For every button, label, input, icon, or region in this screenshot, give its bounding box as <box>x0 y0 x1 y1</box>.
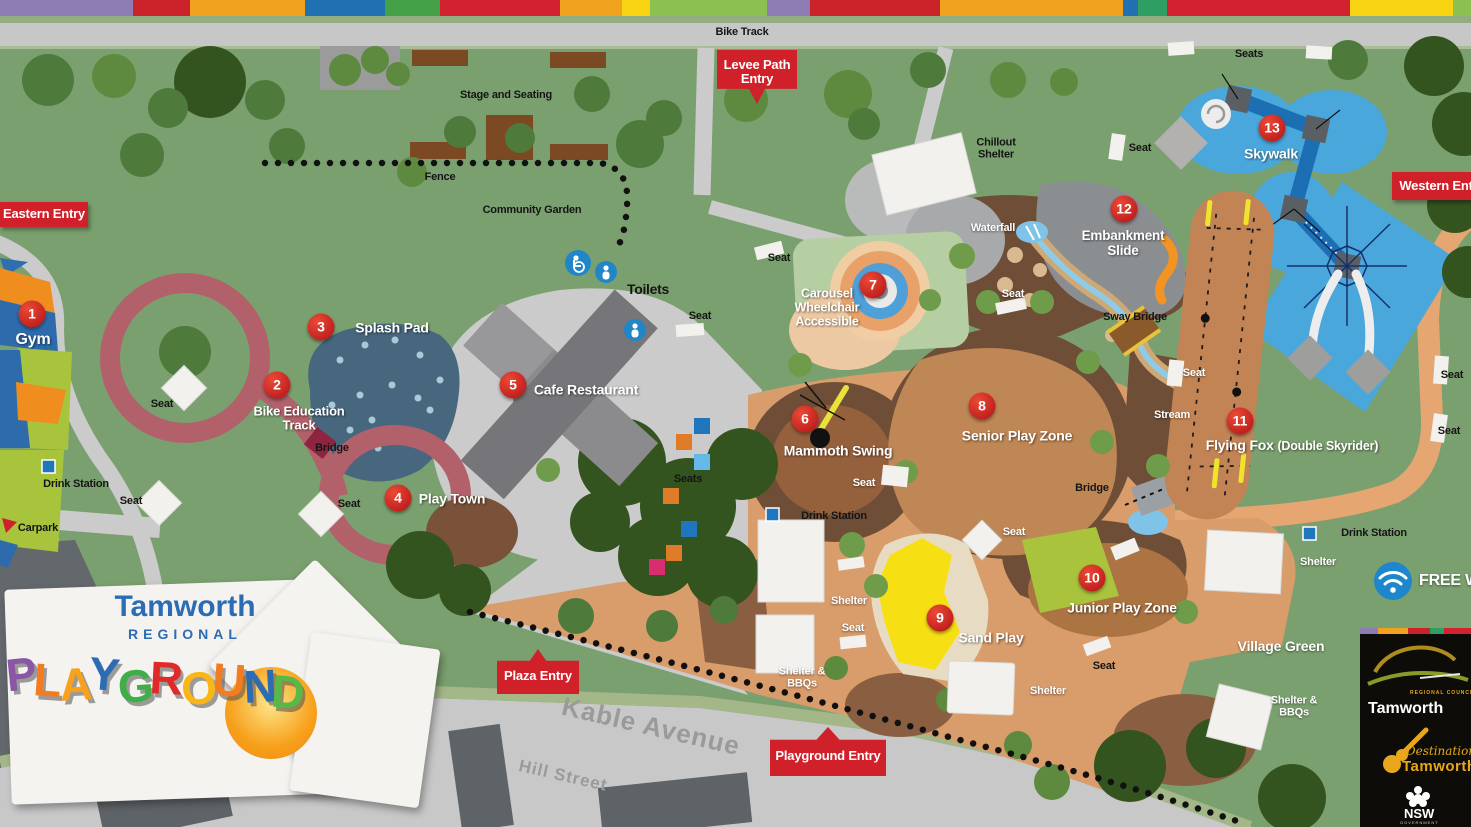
label-carousel: Carousel Wheelchair Accessible <box>783 287 871 328</box>
label-gym: Gym <box>16 331 51 349</box>
sign-western-entry: Western Entry <box>1392 172 1471 200</box>
logo-letter: R <box>148 650 184 706</box>
label-sand-play: Sand Play <box>958 630 1023 645</box>
label-stream: Stream <box>1154 409 1190 421</box>
badge-2: 2 <box>264 372 291 399</box>
badge-11: 11 <box>1227 408 1254 435</box>
label-bike-education-track: Bike Education Track <box>243 405 355 434</box>
badge-6: 6 <box>792 406 819 433</box>
brand-council-tag: REGIONAL COUNCIL <box>1410 690 1471 696</box>
badge-5: 5 <box>500 372 527 399</box>
badge-8: 8 <box>969 393 996 420</box>
label-shelter-bbqs: Shelter & BBQs <box>1265 695 1323 720</box>
flying-fox-name: Flying Fox <box>1206 437 1274 453</box>
badge-1: 1 <box>19 301 46 328</box>
logo-word-playground: P L A Y G R O U N D <box>6 647 426 701</box>
label-toilets: Toilets <box>627 282 669 298</box>
brand-nsw-government: GOVERNMENT <box>1400 820 1439 825</box>
label-seat: Seat <box>1438 425 1460 437</box>
label-drink-station-mid: Drink Station <box>801 510 867 522</box>
label-community-garden: Community Garden <box>483 204 582 216</box>
playground-map: .tD{fill:#33531f}.tM{fill:#4e7a3c}.tL{fi… <box>0 0 1471 827</box>
badge-3: 3 <box>308 314 335 341</box>
brand-destination-script: Destination <box>1406 744 1471 758</box>
label-play-town: Play Town <box>419 491 485 506</box>
label-splash-pad: Splash Pad <box>355 320 428 335</box>
label-seat: Seat <box>1002 288 1024 300</box>
label-seat: Seat <box>1003 526 1025 538</box>
label-seat: Seat <box>853 477 875 489</box>
label-seats: Seats <box>674 473 702 485</box>
sign-eastern-entry: Eastern Entry <box>0 202 88 227</box>
label-shelter: Shelter <box>1300 556 1336 568</box>
label-mammoth-swing: Mammoth Swing <box>784 443 893 458</box>
council-brand-box: REGIONAL COUNCIL Tamworth Destination Ta… <box>1360 628 1471 827</box>
badge-13: 13 <box>1259 115 1286 142</box>
label-junior-play-zone: Junior Play Zone <box>1067 600 1177 615</box>
label-fence: Fence <box>425 171 456 183</box>
label-flying-fox: Flying Fox (Double Skyrider) <box>1206 438 1379 454</box>
label-drink-station-east: Drink Station <box>1341 527 1407 539</box>
label-free-wifi: FREE WIFI <box>1419 572 1471 590</box>
label-seat: Seat <box>338 498 360 510</box>
label-waterfall: Waterfall <box>971 222 1015 234</box>
label-cafe-restaurant: Cafe Restaurant <box>534 382 638 397</box>
logo-line2: REGIONAL <box>70 626 300 642</box>
label-seat: Seat <box>120 495 142 507</box>
brand-graphics <box>1360 634 1471 827</box>
brand-destination-name: Tamworth <box>1402 758 1471 775</box>
label-seat: Seat <box>1129 142 1151 154</box>
label-seat: Seat <box>768 252 790 264</box>
label-bridge-bike: Bridge <box>315 442 349 454</box>
label-embankment-slide: Embankment Slide <box>1071 229 1175 259</box>
logo-letter: D <box>269 664 307 721</box>
label-chillout-shelter: Chillout Shelter <box>967 137 1025 162</box>
label-seat: Seat <box>1093 660 1115 672</box>
label-seat: Seat <box>689 310 711 322</box>
label-seat: Seat <box>842 622 864 634</box>
decorative-colour-stripe <box>0 0 1471 16</box>
label-senior-play-zone: Senior Play Zone <box>962 428 1072 443</box>
label-seat: Seat <box>151 398 173 410</box>
label-shelter: Shelter <box>1030 685 1066 697</box>
tamworth-regional-playground-logo: Tamworth REGIONAL P L A Y G R O U N D <box>0 562 430 827</box>
flying-fox-sublabel: (Double Skyrider) <box>1277 439 1378 453</box>
label-stage-and-seating: Stage and Seating <box>460 89 552 101</box>
label-shelter: Shelter <box>831 595 867 607</box>
label-village-green: Village Green <box>1238 639 1325 655</box>
badge-10: 10 <box>1079 565 1106 592</box>
label-skywalk: Skywalk <box>1244 146 1298 161</box>
label-bridge-junior: Bridge <box>1075 482 1109 494</box>
label-shelter-bbqs: Shelter & BBQs <box>773 666 831 691</box>
badge-9: 9 <box>927 605 954 632</box>
badge-4: 4 <box>385 485 412 512</box>
label-seat: Seat <box>1441 369 1463 381</box>
label-bike-track: Bike Track <box>715 26 768 38</box>
label-carpark: Carpark <box>18 522 58 534</box>
brand-council-name: Tamworth <box>1368 700 1443 718</box>
label-seats: Seats <box>1235 48 1263 60</box>
label-seat: Seat <box>1183 367 1205 379</box>
label-sway-bridge: Sway Bridge <box>1103 311 1167 323</box>
brand-nsw: NSW <box>1404 806 1434 821</box>
label-drink-station-west: Drink Station <box>43 478 109 490</box>
logo-line1: Tamworth <box>70 590 300 624</box>
badge-12: 12 <box>1111 196 1138 223</box>
